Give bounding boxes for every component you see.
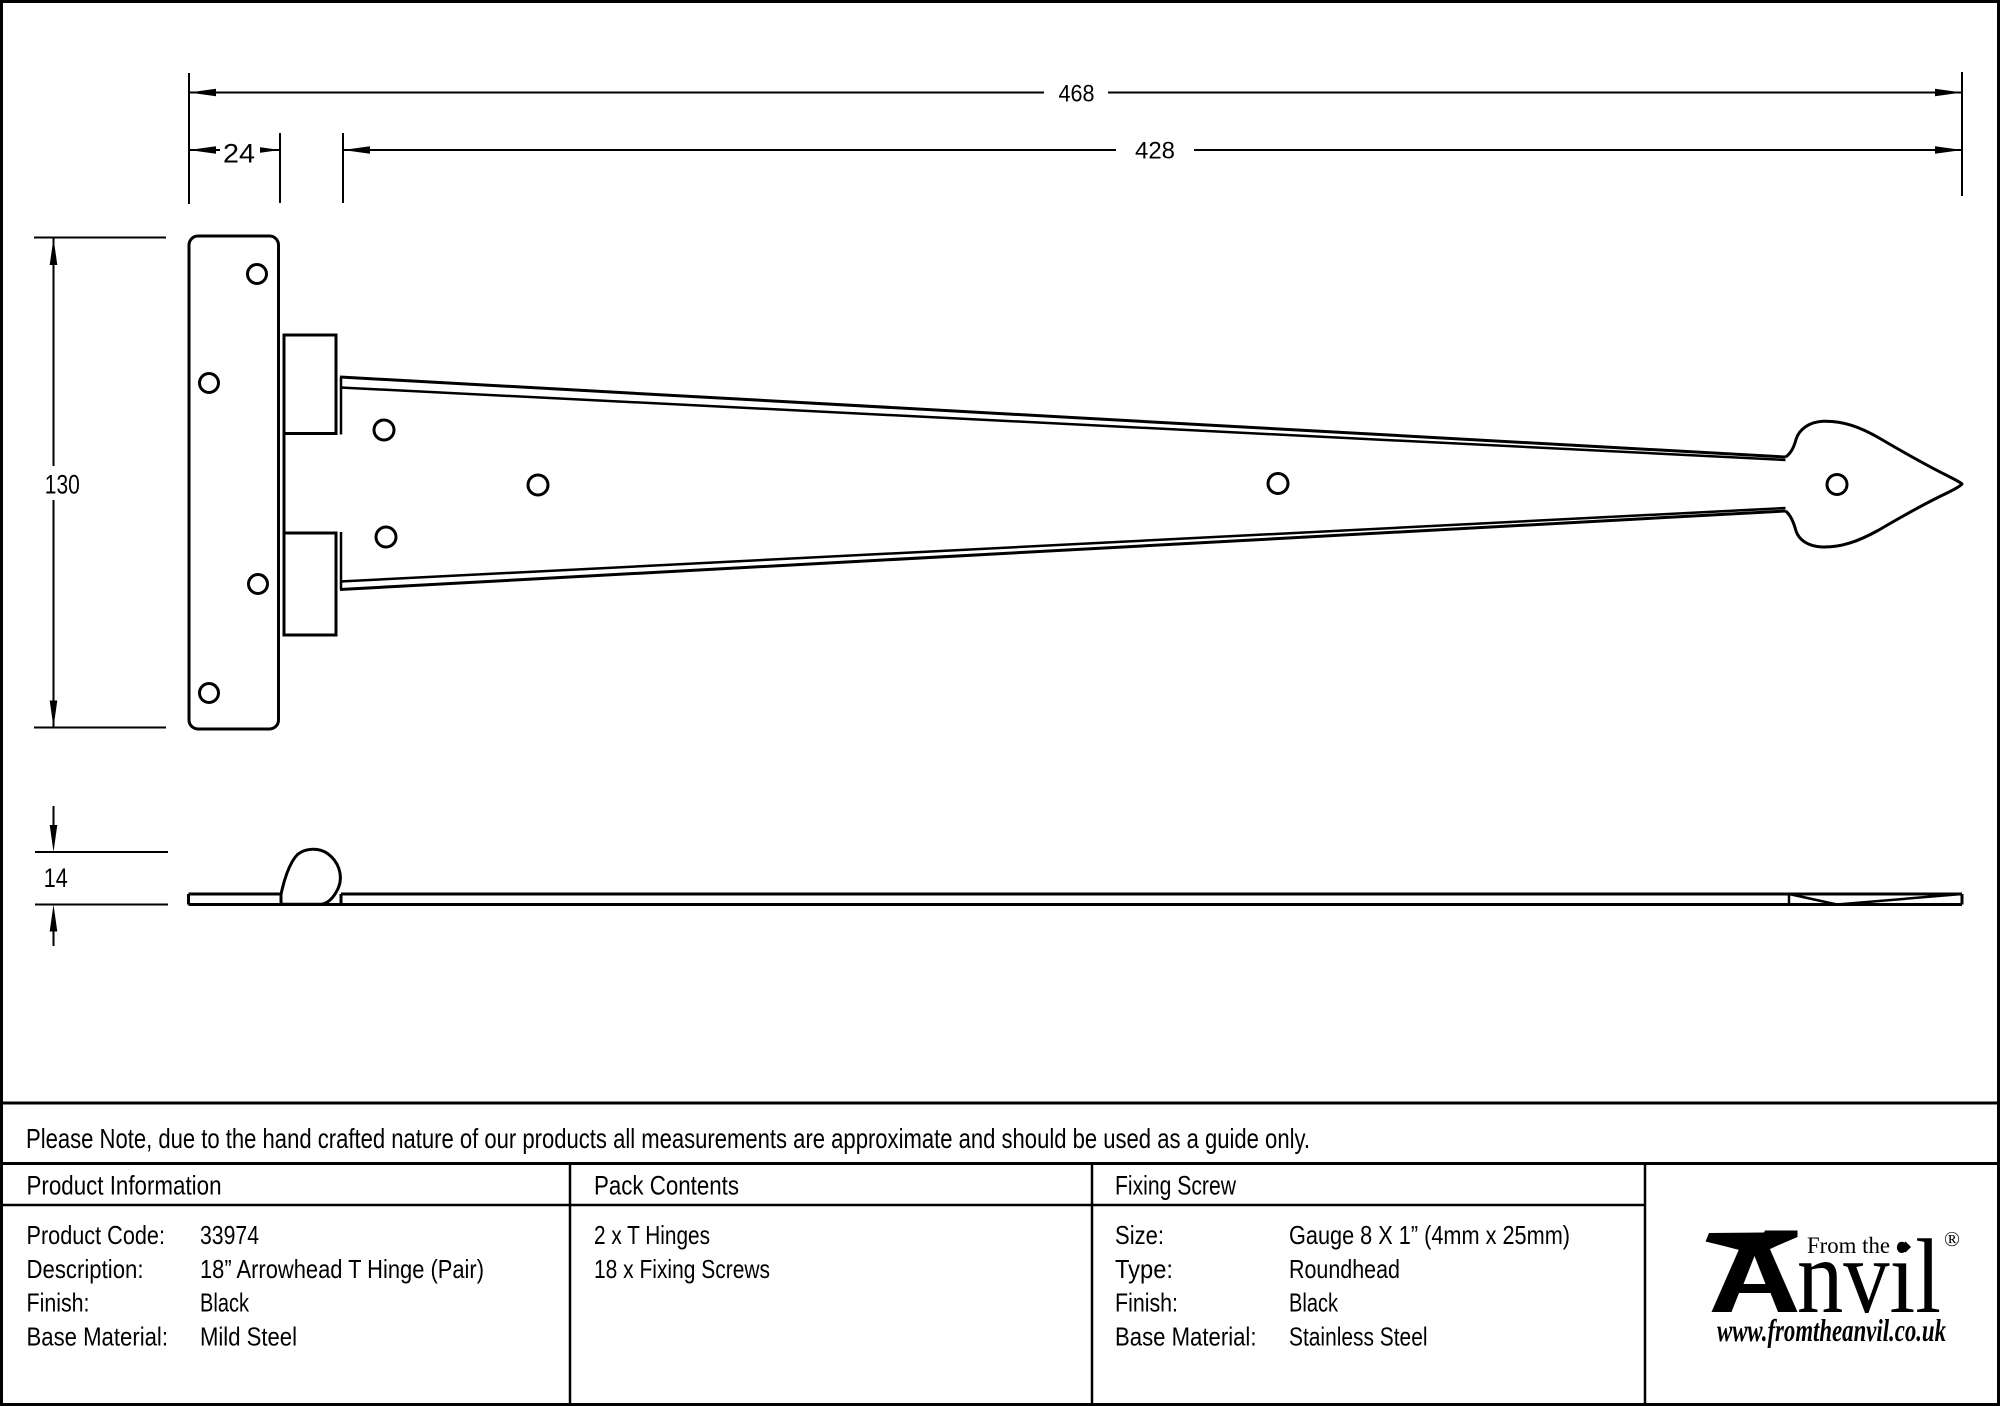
svg-text:Base Material:: Base Material: [1115,1322,1257,1352]
svg-text:18 x Fixing Screws: 18 x Fixing Screws [594,1254,770,1284]
svg-text:18” Arrowhead T Hinge (Pair): 18” Arrowhead T Hinge (Pair) [200,1254,484,1284]
svg-text:428: 428 [1135,138,1175,165]
svg-text:Roundhead: Roundhead [1289,1254,1400,1284]
svg-text:Pack Contents: Pack Contents [594,1171,739,1201]
svg-text:www.fromtheanvil.co.uk: www.fromtheanvil.co.uk [1717,1312,1946,1348]
svg-text:130: 130 [45,470,80,500]
svg-text:Product Code:: Product Code: [27,1220,166,1250]
svg-text:Mild Steel: Mild Steel [200,1322,297,1352]
svg-text:33974: 33974 [200,1220,259,1250]
svg-text:14: 14 [44,863,68,893]
svg-text:Finish:: Finish: [27,1288,90,1318]
svg-text:Please Note, due to the hand c: Please Note, due to the hand crafted nat… [26,1123,1310,1154]
svg-text:2 x T Hinges: 2 x T Hinges [594,1220,710,1250]
svg-text:Size:: Size: [1115,1220,1164,1250]
svg-text:Product Information: Product Information [27,1171,222,1201]
svg-text:Black: Black [200,1288,250,1318]
svg-text:Description:: Description: [27,1254,144,1284]
svg-text:Black: Black [1289,1288,1339,1318]
svg-text:Finish:: Finish: [1115,1288,1178,1318]
svg-text:468: 468 [1059,81,1095,108]
svg-text:®: ® [1944,1227,1960,1251]
svg-text:Fixing Screw: Fixing Screw [1115,1171,1236,1201]
svg-text:24: 24 [223,139,255,169]
svg-text:Stainless Steel: Stainless Steel [1289,1322,1428,1352]
svg-text:Type:: Type: [1115,1254,1173,1284]
svg-text:Base Material:: Base Material: [27,1322,169,1352]
svg-text:Gauge 8 X 1” (4mm x 25mm): Gauge 8 X 1” (4mm x 25mm) [1289,1220,1570,1250]
